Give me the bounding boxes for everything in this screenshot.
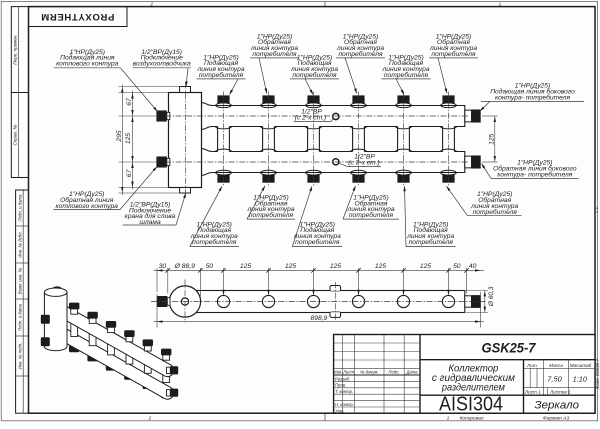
svg-text:потребителя: потребителя (431, 50, 476, 58)
svg-text:Ø 60,3: Ø 60,3 (488, 286, 495, 307)
svg-text:295: 295 (116, 130, 123, 142)
svg-text:потребителя: потребителя (199, 71, 244, 79)
svg-text:898,9: 898,9 (311, 315, 328, 322)
svg-text:2: 2 (148, 416, 152, 422)
svg-text:Ø 88,9: Ø 88,9 (174, 263, 195, 270)
svg-text:7,50: 7,50 (547, 374, 562, 383)
svg-text:125: 125 (285, 263, 296, 270)
svg-text:воздухоотводчика: воздухоотводчика (133, 60, 191, 68)
svg-text:потребителя: потребителя (384, 71, 429, 79)
svg-text:Копировал: Копировал (460, 416, 484, 422)
svg-text:Изм.: Изм. (334, 369, 343, 374)
svg-text:потребителя: потребителя (249, 211, 294, 219)
svg-text:30: 30 (159, 263, 167, 270)
svg-text:потребителя: потребителя (292, 71, 337, 79)
svg-text:потребителя: потребителя (473, 208, 518, 216)
svg-text:(с 2-х ст.): (с 2-х ст.) (348, 160, 380, 167)
svg-text:потребителя: потребителя (252, 50, 297, 58)
svg-text:котлового контура: котлового контура (55, 203, 118, 210)
svg-text:Масса: Масса (549, 363, 563, 368)
svg-text:40: 40 (469, 263, 477, 270)
svg-text:Инв. № подл.: Инв. № подл. (17, 343, 22, 370)
svg-text:Формат А3: Формат А3 (543, 416, 570, 422)
svg-text:потребителя: потребителя (349, 211, 394, 219)
svg-text:Разраб.: Разраб. (335, 376, 350, 381)
svg-text:котлового контура: котлового контура (56, 61, 119, 68)
svg-text:Лист 1: Лист 1 (524, 390, 541, 395)
svg-text:GSK25-7: GSK25-7 (482, 340, 537, 355)
svg-text:Масштаб: Масштаб (570, 363, 592, 368)
svg-text:Лист: Лист (342, 369, 354, 374)
svg-text:125: 125 (375, 263, 386, 270)
svg-text:Листов 1: Листов 1 (549, 390, 571, 395)
svg-text:125: 125 (240, 263, 251, 270)
svg-text:потребителя: потребителя (409, 238, 454, 246)
svg-text:125: 125 (330, 263, 341, 270)
svg-text:А: А (594, 206, 598, 211)
svg-text:Взам. инв. №: Взам. инв. № (17, 267, 22, 294)
svg-text:Подп.: Подп. (388, 369, 399, 374)
svg-text:125: 125 (125, 133, 132, 144)
svg-text:1: 1 (447, 416, 450, 422)
svg-text:Зеркало: Зеркало (535, 400, 580, 412)
svg-text:Н. контр.: Н. контр. (335, 402, 354, 407)
svg-text:контура- потребителя: контура- потребителя (497, 170, 573, 178)
svg-text:потребителя: потребителя (295, 238, 340, 246)
svg-text:разделителем: разделителем (441, 383, 505, 394)
svg-text:№ докум.: № докум. (360, 369, 378, 374)
svg-text:Т. контр.: Т. контр. (335, 389, 353, 394)
svg-text:125: 125 (420, 263, 431, 270)
svg-text:PROXYTHERM: PROXYTHERM (41, 11, 115, 22)
svg-text:потребителя: потребителя (192, 238, 237, 246)
svg-text:Перв. примен.: Перв. примен. (12, 34, 17, 65)
svg-text:потребителя: потребителя (338, 50, 383, 58)
svg-text:AISI304: AISI304 (439, 393, 503, 415)
svg-text:50: 50 (453, 263, 461, 270)
svg-text:Дата: Дата (405, 369, 418, 374)
svg-text:Подп. и дата: Подп. и дата (17, 194, 22, 222)
svg-text:67: 67 (126, 98, 133, 106)
svg-text:Лит.: Лит. (526, 363, 538, 368)
svg-text:1:10: 1:10 (573, 374, 588, 383)
svg-text:125: 125 (488, 133, 495, 144)
svg-text:Инв. № дубл.: Инв. № дубл. (17, 231, 22, 257)
svg-text:Справ. №: Справ. № (12, 125, 17, 146)
svg-text:Подп. и дата: Подп. и дата (17, 303, 22, 331)
svg-text:50: 50 (206, 263, 214, 270)
svg-text:Пров.: Пров. (335, 383, 346, 388)
svg-text:Утв.: Утв. (335, 408, 345, 413)
svg-text:контура- потребителя: контура- потребителя (495, 93, 571, 101)
svg-text:(с 2-х ст.): (с 2-х ст.) (295, 115, 327, 122)
svg-text:67: 67 (126, 170, 133, 178)
